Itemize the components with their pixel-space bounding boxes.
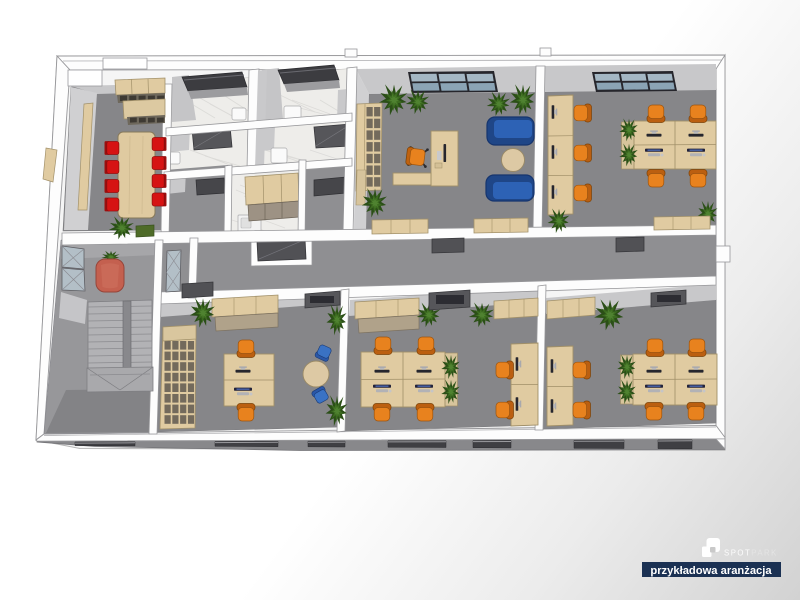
svg-text:SPOTPARK: SPOTPARK [724,549,778,558]
svg-text:przykładowa aranżacja: przykładowa aranżacja [650,565,772,577]
